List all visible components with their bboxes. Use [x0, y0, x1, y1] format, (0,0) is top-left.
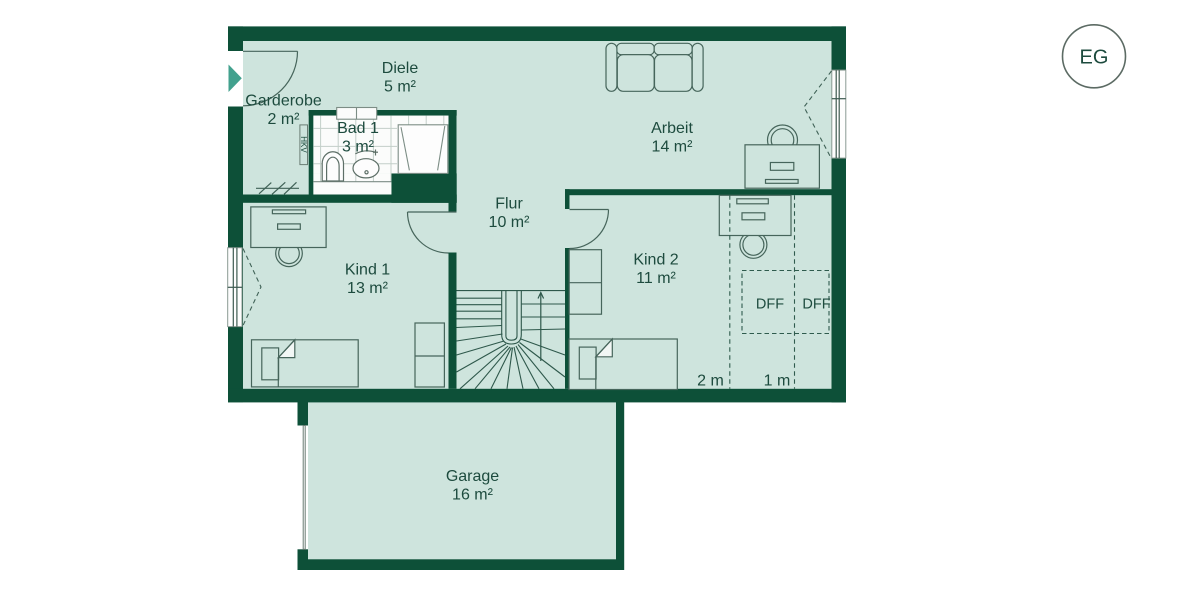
svg-text:Kind 1: Kind 1	[345, 262, 390, 279]
svg-text:Flur: Flur	[495, 196, 523, 213]
svg-text:14 m²: 14 m²	[652, 139, 694, 156]
svg-text:Garage: Garage	[446, 468, 499, 485]
svg-text:Diele: Diele	[382, 60, 419, 77]
svg-text:13 m²: 13 m²	[347, 280, 389, 297]
svg-text:Kind 2: Kind 2	[633, 252, 678, 269]
svg-text:11 m²: 11 m²	[636, 270, 676, 287]
svg-text:DFF: DFF	[756, 297, 784, 313]
svg-text:Garderobe: Garderobe	[245, 93, 322, 110]
svg-text:EG: EG	[1080, 47, 1109, 69]
svg-text:3 m²: 3 m²	[342, 139, 375, 156]
svg-text:HKV: HKV	[299, 136, 308, 153]
svg-text:16 m²: 16 m²	[452, 487, 494, 504]
svg-text:Bad 1: Bad 1	[337, 120, 379, 137]
svg-text:10 m²: 10 m²	[489, 214, 531, 231]
svg-text:Arbeit: Arbeit	[651, 120, 693, 137]
svg-text:DFF: DFF	[802, 297, 830, 313]
svg-text:1 m: 1 m	[764, 373, 791, 390]
svg-text:2 m: 2 m	[697, 373, 724, 390]
svg-text:5 m²: 5 m²	[384, 79, 417, 96]
svg-text:2 m²: 2 m²	[268, 111, 301, 128]
